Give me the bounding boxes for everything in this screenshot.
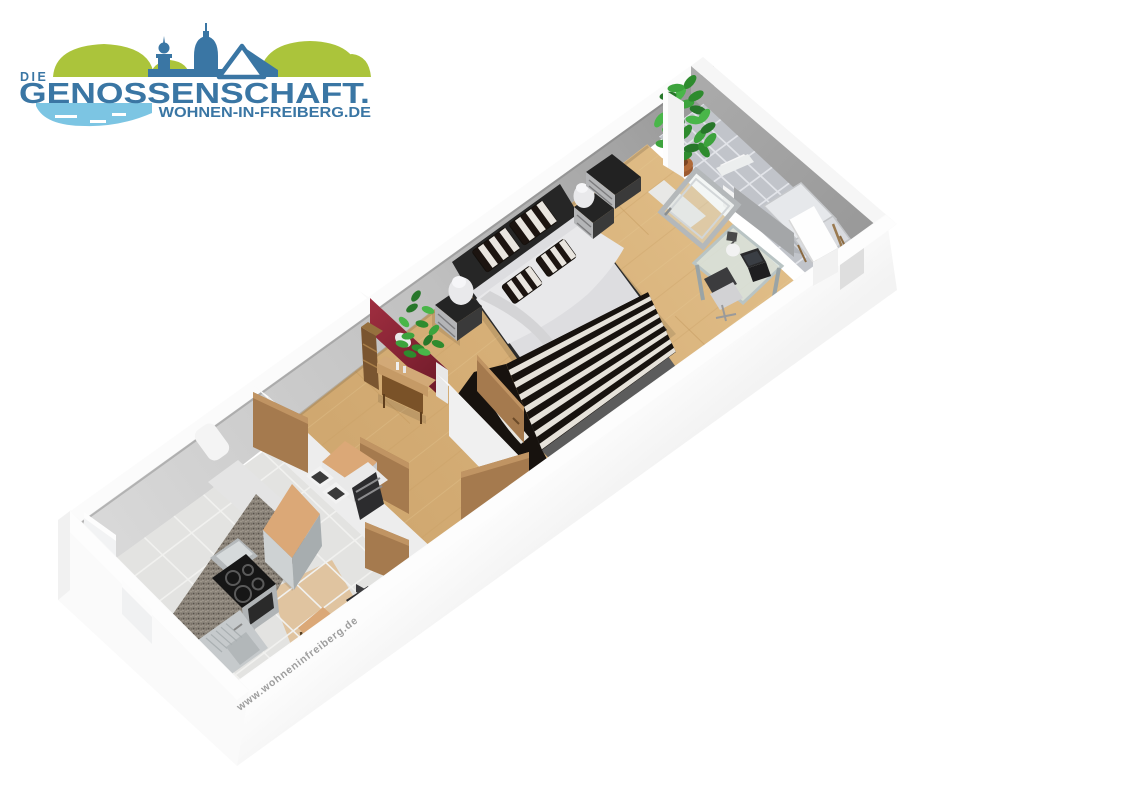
svg-text:WOHNEN-IN-FREIBERG.DE: WOHNEN-IN-FREIBERG.DE: [159, 105, 371, 121]
